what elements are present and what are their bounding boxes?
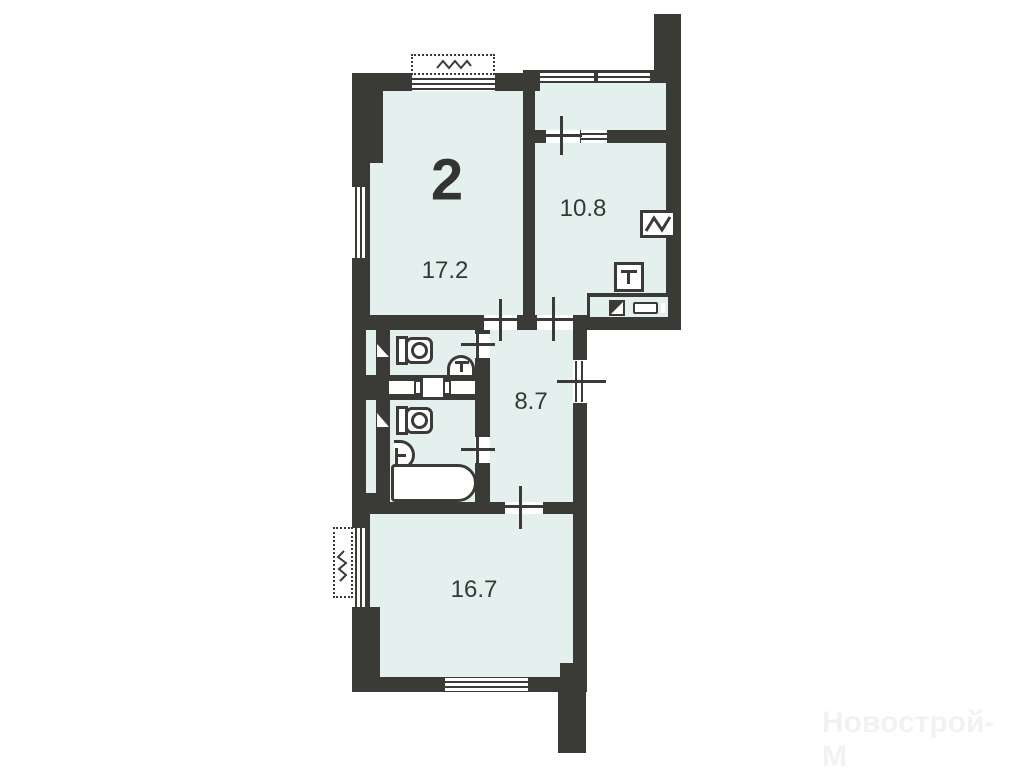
window-loggia-mullion [594,72,598,83]
wall-bedroom-top [352,502,587,514]
window-bedroom-bottom [445,678,528,691]
cabinet-icon [633,302,658,314]
door-cross-marker [545,134,582,137]
vent-shaft-icon [609,300,625,316]
wall-loggia-top [535,70,666,83]
ac-scribble [335,529,351,596]
ac-unit-left [333,527,353,598]
wall-column-bottom [558,692,586,753]
vent-shaft-icon [389,381,414,394]
washbasin-tap [395,454,406,457]
vent-shaft-icon [445,382,449,393]
door-cross-marker [461,448,495,451]
floor-plan: 2 17.2 10.8 8.7 16.7 Новострой-М [0,0,1014,768]
hallway-area-label: 8.7 [514,388,547,416]
vent-shaft-icon [423,378,443,397]
wall-notch-living [370,73,383,163]
door-cross-marker [535,318,574,321]
window-living-top [412,75,495,91]
ac-scribble [413,56,493,73]
ac-unit-top [411,54,495,75]
loggia-floor [535,80,666,130]
window-kitchen-balcony [581,130,607,143]
stove-zigzag [643,213,673,235]
hallway-floor [490,330,573,502]
vent-shaft-icon [451,381,475,394]
living-room-area-label: 17.2 [422,257,469,285]
stove-icon [640,210,676,238]
watermark: Новострой-М [822,706,1014,768]
wall-cavity-slot [366,330,376,493]
door-cross-marker [482,318,521,321]
wall-hall-right [573,330,587,502]
window-living-left [352,187,367,258]
wall-living-kitchen [523,70,535,315]
door-cross-marker [461,343,495,346]
door-cross-marker [557,380,606,383]
sink-icon [614,262,644,292]
vent-shaft-icon [416,382,420,393]
wall-corner-notch [560,663,576,678]
washbasin-tap [460,361,463,372]
window-bedroom-left [352,528,367,607]
sink-tap [627,270,630,284]
kitchen-area-label: 10.8 [560,195,607,223]
bathtub-icon [391,464,477,502]
cabinet-tick [661,303,665,313]
door-cross-marker [502,505,544,508]
vent-shaft-diagonal [611,302,623,314]
apartment-type-label: 2 [431,147,463,214]
kitchen-floor-lower [535,293,587,317]
door-opening-bedroom [505,502,543,514]
toilet-icon [411,342,428,359]
bedroom-area-label: 16.7 [451,576,498,604]
toilet-icon [411,412,428,429]
washbasin-icon [447,355,475,375]
